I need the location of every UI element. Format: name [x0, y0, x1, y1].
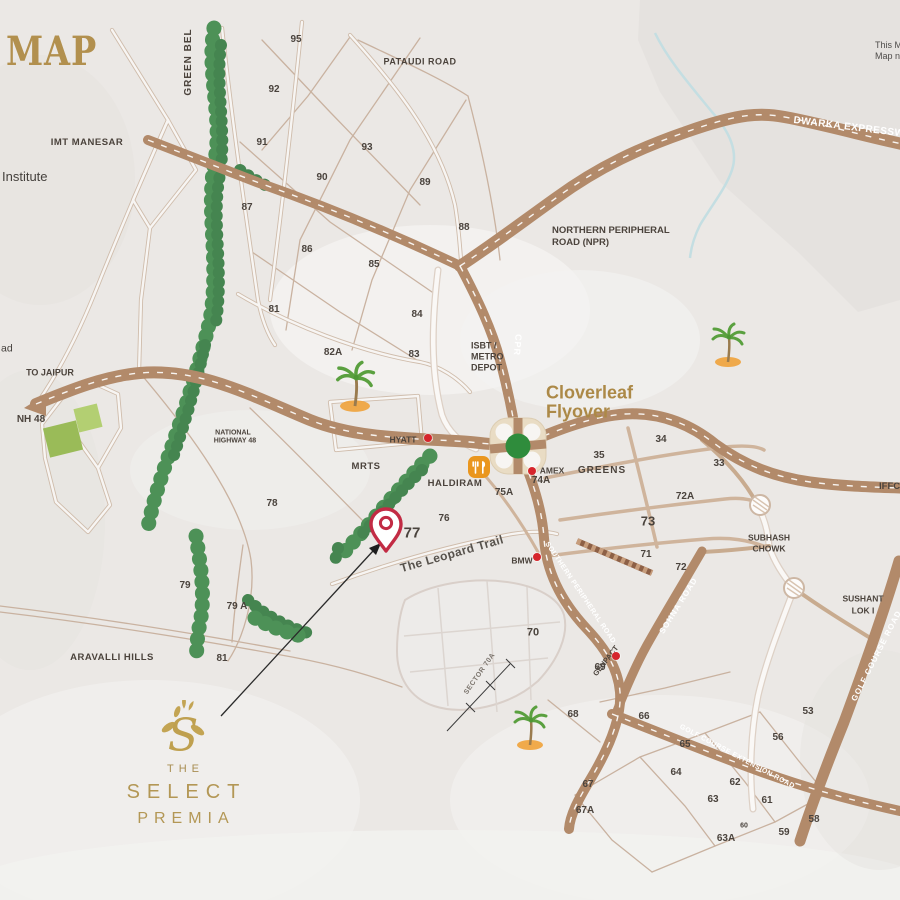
palm-tree-icon: [713, 324, 744, 367]
restaurant-icon: [468, 456, 490, 478]
logo-premia: PREMIA: [94, 810, 272, 828]
location-map: MAP This M Map n S THE SELECT PREMIA GRE…: [0, 0, 900, 900]
logo-select: SELECT: [94, 781, 272, 804]
page-title: MAP: [6, 28, 97, 75]
logo-s-icon: S: [148, 700, 218, 762]
pointer-line: [221, 543, 381, 716]
interchange-golf-course: [784, 578, 804, 598]
disclaimer-line2: Map n: [875, 51, 900, 61]
sector-70-block: [397, 580, 565, 731]
svg-text:S: S: [168, 709, 199, 761]
select-premia-logo: S THE SELECT PREMIA: [94, 700, 272, 828]
logo-the: THE: [94, 763, 272, 775]
hyatt-dot: [424, 434, 432, 442]
genpact-dot: [612, 652, 620, 660]
cloverleaf-interchange: [490, 418, 546, 474]
disclaimer-line1: This M: [875, 40, 900, 50]
amex-dot: [528, 467, 536, 475]
bmw-dot: [533, 553, 541, 561]
cloverleaf-circle: [506, 434, 531, 459]
project-location-pin: [371, 509, 401, 551]
interchange-subhash: [750, 495, 770, 515]
